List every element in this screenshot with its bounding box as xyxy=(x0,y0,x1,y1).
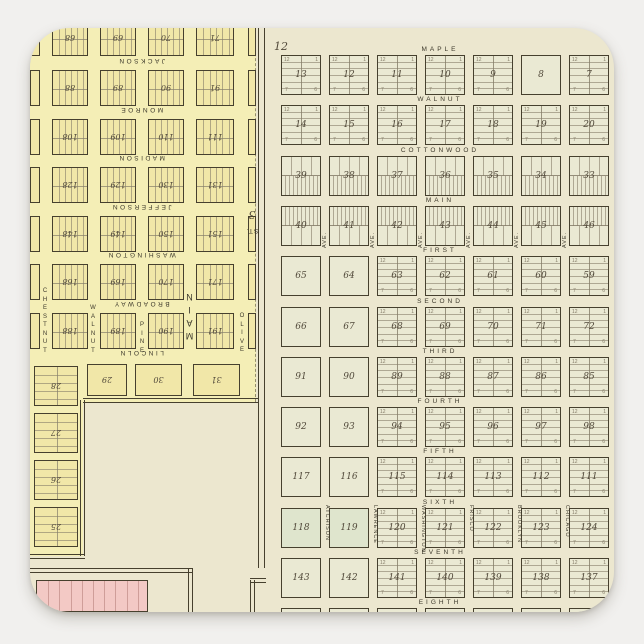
street-label-olive: OLIVE xyxy=(236,312,248,355)
block-number: 168 xyxy=(53,265,87,299)
block-number: 70 xyxy=(149,28,183,55)
street-letter: N xyxy=(136,338,148,347)
block-number: 62 xyxy=(426,257,464,295)
block-number: 117 xyxy=(282,458,320,496)
block: 1217661 xyxy=(473,256,513,296)
block: 43 xyxy=(425,206,465,246)
block-number: 18 xyxy=(474,106,512,144)
block: 37 xyxy=(377,156,417,196)
block: 90 xyxy=(329,357,369,397)
street-label-chestnut: CHESTNUT xyxy=(39,287,51,355)
block: 188 xyxy=(52,313,88,349)
block-number: 66 xyxy=(282,308,320,346)
block-number: 191 xyxy=(197,314,233,348)
block: 1217697 xyxy=(521,407,561,447)
block: 66 xyxy=(281,307,321,347)
street-letter: N xyxy=(39,330,51,339)
plat-border xyxy=(83,398,258,403)
street-letter: V xyxy=(236,338,248,347)
block: 1217613 xyxy=(281,55,321,95)
street-label-jackson: JACKSON xyxy=(30,56,252,65)
block-number: 190 xyxy=(149,314,183,348)
block-number: 14 xyxy=(282,106,320,144)
street-letter: A xyxy=(181,316,197,329)
block: 12176122 xyxy=(473,508,513,548)
street-label-walnut: WALNUT xyxy=(272,95,608,104)
road-line xyxy=(258,28,259,568)
block: 12176137 xyxy=(569,558,609,598)
street-label-ave: AVE. xyxy=(370,208,378,248)
block: 44 xyxy=(473,206,513,246)
block-number: 36 xyxy=(426,157,464,195)
block: 151 xyxy=(196,216,234,252)
block: 93 xyxy=(329,407,369,447)
block: 88 xyxy=(52,70,88,106)
block-number: 143 xyxy=(282,559,320,597)
block-number: 113 xyxy=(474,458,512,496)
block: 12176120 xyxy=(377,508,417,548)
street-label-ave: AVE. xyxy=(322,208,330,248)
block-number: 7 xyxy=(570,56,608,94)
block: 92 xyxy=(281,407,321,447)
block: 189 xyxy=(100,313,136,349)
block-number: 109 xyxy=(101,120,135,154)
block: 12176140 xyxy=(425,558,465,598)
street-letter: L xyxy=(236,321,248,330)
street-label-pine: PINE xyxy=(136,321,148,355)
block: 1217660 xyxy=(521,256,561,296)
block-number: 61 xyxy=(474,257,512,295)
street-label-second: SECOND xyxy=(272,297,608,306)
block-number: 34 xyxy=(522,157,560,195)
block: 31 xyxy=(193,364,240,396)
street-label-third: THIRD xyxy=(272,347,608,356)
block: 119 xyxy=(329,508,369,548)
block xyxy=(248,313,256,349)
block-number: 12 xyxy=(330,56,368,94)
block-number: 71 xyxy=(522,308,560,346)
block: 1217612 xyxy=(329,55,369,95)
street-label-fourth: FOURTH xyxy=(272,397,608,406)
pink-lot-line xyxy=(93,581,94,611)
block-partial xyxy=(377,608,417,612)
street-letter: E xyxy=(236,346,248,355)
block-number: 38 xyxy=(330,157,368,195)
block: 12176113 xyxy=(473,457,513,497)
block: 131 xyxy=(196,167,234,203)
block-number: 33 xyxy=(570,157,608,195)
block: 12176114 xyxy=(425,457,465,497)
block xyxy=(248,28,256,56)
block: 116 xyxy=(329,457,369,497)
block xyxy=(30,28,40,56)
block-number: 110 xyxy=(149,120,183,154)
block-number: 98 xyxy=(570,408,608,446)
block-number: 11 xyxy=(378,56,416,94)
block: 170 xyxy=(148,264,184,300)
block-number: 97 xyxy=(522,408,560,446)
street-letter: M xyxy=(181,329,197,342)
block-number: 63 xyxy=(378,257,416,295)
block-partial xyxy=(425,608,465,612)
street-label-ave: AVE. xyxy=(418,208,426,248)
block-number: 189 xyxy=(101,314,135,348)
block-number: 123 xyxy=(522,509,560,547)
block: 26 xyxy=(34,460,78,500)
block-number: 138 xyxy=(522,559,560,597)
block: 1217619 xyxy=(521,105,561,145)
block: 45 xyxy=(521,206,561,246)
block-number: 44 xyxy=(474,207,512,245)
block: 1217620 xyxy=(569,105,609,145)
block: 25 xyxy=(34,507,78,547)
pink-block xyxy=(36,580,148,612)
block: 191 xyxy=(196,313,234,349)
block-number: 26 xyxy=(35,461,77,499)
block: 1217668 xyxy=(377,307,417,347)
block-number: 67 xyxy=(330,308,368,346)
block-number: 92 xyxy=(282,408,320,446)
street-letter: T xyxy=(87,347,99,356)
block-number: 69 xyxy=(426,308,464,346)
block-number: 19 xyxy=(522,106,560,144)
street-letter: E xyxy=(136,347,148,356)
block-number: 188 xyxy=(53,314,87,348)
block xyxy=(248,264,256,300)
block: 68 xyxy=(52,28,88,56)
block: 12176111 xyxy=(569,457,609,497)
block: 130 xyxy=(148,167,184,203)
block: 46 xyxy=(569,206,609,246)
block-number: 116 xyxy=(330,458,368,496)
street-letter: A xyxy=(87,313,99,322)
street-letter: L xyxy=(87,321,99,330)
pink-lot-line xyxy=(115,581,116,611)
block-partial xyxy=(281,608,321,612)
block: 65 xyxy=(281,256,321,296)
block: 1217659 xyxy=(569,256,609,296)
street-label-eighth: EIGHTH xyxy=(272,598,608,607)
block: 1217694 xyxy=(377,407,417,447)
block-number: 93 xyxy=(330,408,368,446)
block-number: 149 xyxy=(101,217,135,251)
block: 12176123 xyxy=(521,508,561,548)
pink-lot-line xyxy=(104,581,105,611)
inset-border xyxy=(250,580,255,612)
block-number: 90 xyxy=(149,71,183,105)
block-number: 25 xyxy=(35,508,77,546)
block-number: 35 xyxy=(474,157,512,195)
block: 12176112 xyxy=(521,457,561,497)
pink-lot-line xyxy=(127,581,128,611)
street-label-jefferson: JEFFERSON xyxy=(30,202,252,211)
block-number: 46 xyxy=(570,207,608,245)
street-letter: U xyxy=(87,338,99,347)
block: 129 xyxy=(100,167,136,203)
block-number: 121 xyxy=(426,509,464,547)
block: 70 xyxy=(148,28,184,56)
block: 143 xyxy=(281,558,321,598)
block-number: 112 xyxy=(522,458,560,496)
block: 90 xyxy=(148,70,184,106)
street-letter: T xyxy=(39,347,51,356)
block-number: 124 xyxy=(570,509,608,547)
street-label-madison: MADISON xyxy=(30,153,252,162)
block-number: 59 xyxy=(570,257,608,295)
block: 1217615 xyxy=(329,105,369,145)
street-label-washington: WASHINGTON xyxy=(30,250,252,259)
block-number: 111 xyxy=(570,458,608,496)
block-number: 41 xyxy=(330,207,368,245)
block: 40 xyxy=(281,206,321,246)
block: 1217685 xyxy=(569,357,609,397)
block-number: 130 xyxy=(149,168,183,202)
block-number: 151 xyxy=(197,217,233,251)
block-partial xyxy=(521,608,561,612)
block: 118 xyxy=(281,508,321,548)
street-label-main: MAIN xyxy=(181,290,197,342)
street-letter: H xyxy=(39,296,51,305)
block-number: 150 xyxy=(149,217,183,251)
block-number: 20 xyxy=(570,106,608,144)
pink-lot-line xyxy=(138,581,139,611)
block-number: 72 xyxy=(570,308,608,346)
street-letter: I xyxy=(136,330,148,339)
street-label-walnut: WALNUT xyxy=(87,304,99,355)
block-number: 122 xyxy=(474,509,512,547)
street-label-maple: MAPLE xyxy=(272,45,608,54)
block xyxy=(248,167,256,203)
block-number: 111 xyxy=(197,120,233,154)
block-number: 118 xyxy=(282,509,320,547)
block-number: 91 xyxy=(282,358,320,396)
block-number: 114 xyxy=(426,458,464,496)
block xyxy=(30,216,40,252)
street-letter: S xyxy=(39,313,51,322)
block-number: 141 xyxy=(378,559,416,597)
block-partial xyxy=(329,608,369,612)
block-number: 148 xyxy=(53,217,87,251)
block: 1217698 xyxy=(569,407,609,447)
block-number: 10 xyxy=(426,56,464,94)
block-number: 90 xyxy=(330,358,368,396)
block-number: 129 xyxy=(101,168,135,202)
block-number: 64 xyxy=(330,257,368,295)
block-number: 9 xyxy=(474,56,512,94)
street-label-monroe: MONROE xyxy=(30,105,252,114)
street-label-ave: AVE. xyxy=(466,208,474,248)
block-partial xyxy=(473,608,513,612)
block-number: 16 xyxy=(378,106,416,144)
block xyxy=(248,119,256,155)
block: 190 xyxy=(148,313,184,349)
inset-border xyxy=(188,568,193,612)
block-number: 108 xyxy=(53,120,87,154)
street-letter: P xyxy=(136,321,148,330)
plat-border xyxy=(30,554,85,559)
block: 109 xyxy=(100,119,136,155)
block: 1217610 xyxy=(425,55,465,95)
block: 150 xyxy=(148,216,184,252)
block-number: 30 xyxy=(136,365,181,395)
block: 42 xyxy=(377,206,417,246)
street-letter: N xyxy=(87,330,99,339)
block-number: 27 xyxy=(35,414,77,452)
block: 1217662 xyxy=(425,256,465,296)
block: 1217611 xyxy=(377,55,417,95)
block-number: 40 xyxy=(282,207,320,245)
block: 169 xyxy=(100,264,136,300)
block: 12176139 xyxy=(473,558,513,598)
plat-border xyxy=(80,400,85,556)
road-label-number: 3 xyxy=(244,208,260,221)
block: 8 xyxy=(521,55,561,95)
pink-lot-line xyxy=(48,581,49,611)
block-number: 86 xyxy=(522,358,560,396)
block-number: 17 xyxy=(426,106,464,144)
block-number: 131 xyxy=(197,168,233,202)
block: 1217618 xyxy=(473,105,513,145)
block: 142 xyxy=(329,558,369,598)
street-letter: I xyxy=(181,303,197,316)
block-number: 69 xyxy=(101,28,135,55)
block-number: 68 xyxy=(53,28,87,55)
block: 69 xyxy=(100,28,136,56)
block-number: 70 xyxy=(474,308,512,346)
block-number: 119 xyxy=(330,509,368,547)
street-letter: C xyxy=(39,287,51,296)
block: 35 xyxy=(473,156,513,196)
block: 1217671 xyxy=(521,307,561,347)
street-letter: E xyxy=(39,304,51,313)
block-number: 88 xyxy=(426,358,464,396)
street-label-fifth: FIFTH xyxy=(272,447,608,456)
block-number: 43 xyxy=(426,207,464,245)
inset-border xyxy=(30,568,192,573)
block: 12176141 xyxy=(377,558,417,598)
block: 1217617 xyxy=(425,105,465,145)
block-number: 85 xyxy=(570,358,608,396)
block: 71 xyxy=(196,28,234,56)
block: 12176138 xyxy=(521,558,561,598)
block-number: 120 xyxy=(378,509,416,547)
block-number: 71 xyxy=(197,28,233,55)
block: 121769 xyxy=(473,55,513,95)
pink-lot-line xyxy=(59,581,60,611)
block: 1217686 xyxy=(521,357,561,397)
block: 64 xyxy=(329,256,369,296)
block: 1217695 xyxy=(425,407,465,447)
block: 1217672 xyxy=(569,307,609,347)
block: 12176115 xyxy=(377,457,417,497)
street-label-ave: AVE. xyxy=(562,208,570,248)
block-number: 169 xyxy=(101,265,135,299)
street-letter: I xyxy=(236,329,248,338)
block: 30 xyxy=(135,364,182,396)
block-number: 137 xyxy=(570,559,608,597)
block: 110 xyxy=(148,119,184,155)
inset-border xyxy=(250,578,266,583)
block: 121767 xyxy=(569,55,609,95)
block: 1217688 xyxy=(425,357,465,397)
block: 91 xyxy=(196,70,234,106)
block xyxy=(30,167,40,203)
block-number: 88 xyxy=(53,71,87,105)
block-number: 170 xyxy=(149,265,183,299)
block: 117 xyxy=(281,457,321,497)
block-number: 29 xyxy=(88,365,126,395)
block: 29 xyxy=(87,364,127,396)
block-number: 91 xyxy=(197,71,233,105)
block: 149 xyxy=(100,216,136,252)
block-number: 31 xyxy=(194,365,239,395)
block-number: 89 xyxy=(101,71,135,105)
block xyxy=(248,70,256,106)
street-letter: T xyxy=(39,321,51,330)
block: 1217689 xyxy=(377,357,417,397)
pink-lot-line xyxy=(71,581,72,611)
block-number: 140 xyxy=(426,559,464,597)
block: 1217687 xyxy=(473,357,513,397)
street-letter: N xyxy=(181,290,197,303)
block: 38 xyxy=(329,156,369,196)
block-number: 139 xyxy=(474,559,512,597)
block-number: 45 xyxy=(522,207,560,245)
block: 171 xyxy=(196,264,234,300)
block: 27 xyxy=(34,413,78,453)
block: 111 xyxy=(196,119,234,155)
page-background: 6869707188899091108109110111128129130131… xyxy=(0,0,644,644)
block: 108 xyxy=(52,119,88,155)
block-number: 96 xyxy=(474,408,512,446)
road-line xyxy=(264,28,265,568)
block: 41 xyxy=(329,206,369,246)
block-number: 37 xyxy=(378,157,416,195)
block: 28 xyxy=(34,366,78,406)
street-letter: U xyxy=(39,338,51,347)
street-label-cottonwood: COTTONWOOD xyxy=(272,146,608,155)
block: 1217616 xyxy=(377,105,417,145)
block: 36 xyxy=(425,156,465,196)
block: 1217696 xyxy=(473,407,513,447)
street-label-broadway: BROADWAY xyxy=(30,299,252,308)
block: 168 xyxy=(52,264,88,300)
block-number: 89 xyxy=(378,358,416,396)
block-number: 142 xyxy=(330,559,368,597)
block: 39 xyxy=(281,156,321,196)
block-partial xyxy=(569,608,609,612)
map-sticker: 6869707188899091108109110111128129130131… xyxy=(30,28,614,612)
block xyxy=(30,70,40,106)
town-plat-right: 12MAPLEWALNUTCOTTONWOODMAINFIRSTSECONDTH… xyxy=(272,28,614,612)
block xyxy=(30,119,40,155)
block: 89 xyxy=(100,70,136,106)
street-letter: O xyxy=(236,312,248,321)
block: 1217669 xyxy=(425,307,465,347)
town-plat-left: 6869707188899091108109110111128129130131… xyxy=(30,28,268,612)
block-number: 60 xyxy=(522,257,560,295)
block-number: 28 xyxy=(35,367,77,405)
block-number: 94 xyxy=(378,408,416,446)
block-number: 171 xyxy=(197,265,233,299)
block: 1217663 xyxy=(377,256,417,296)
block-number: 95 xyxy=(426,408,464,446)
block: 12176121 xyxy=(425,508,465,548)
block-number: 13 xyxy=(282,56,320,94)
block-number: 87 xyxy=(474,358,512,396)
block: 67 xyxy=(329,307,369,347)
street-label-main: MAIN xyxy=(272,196,608,205)
